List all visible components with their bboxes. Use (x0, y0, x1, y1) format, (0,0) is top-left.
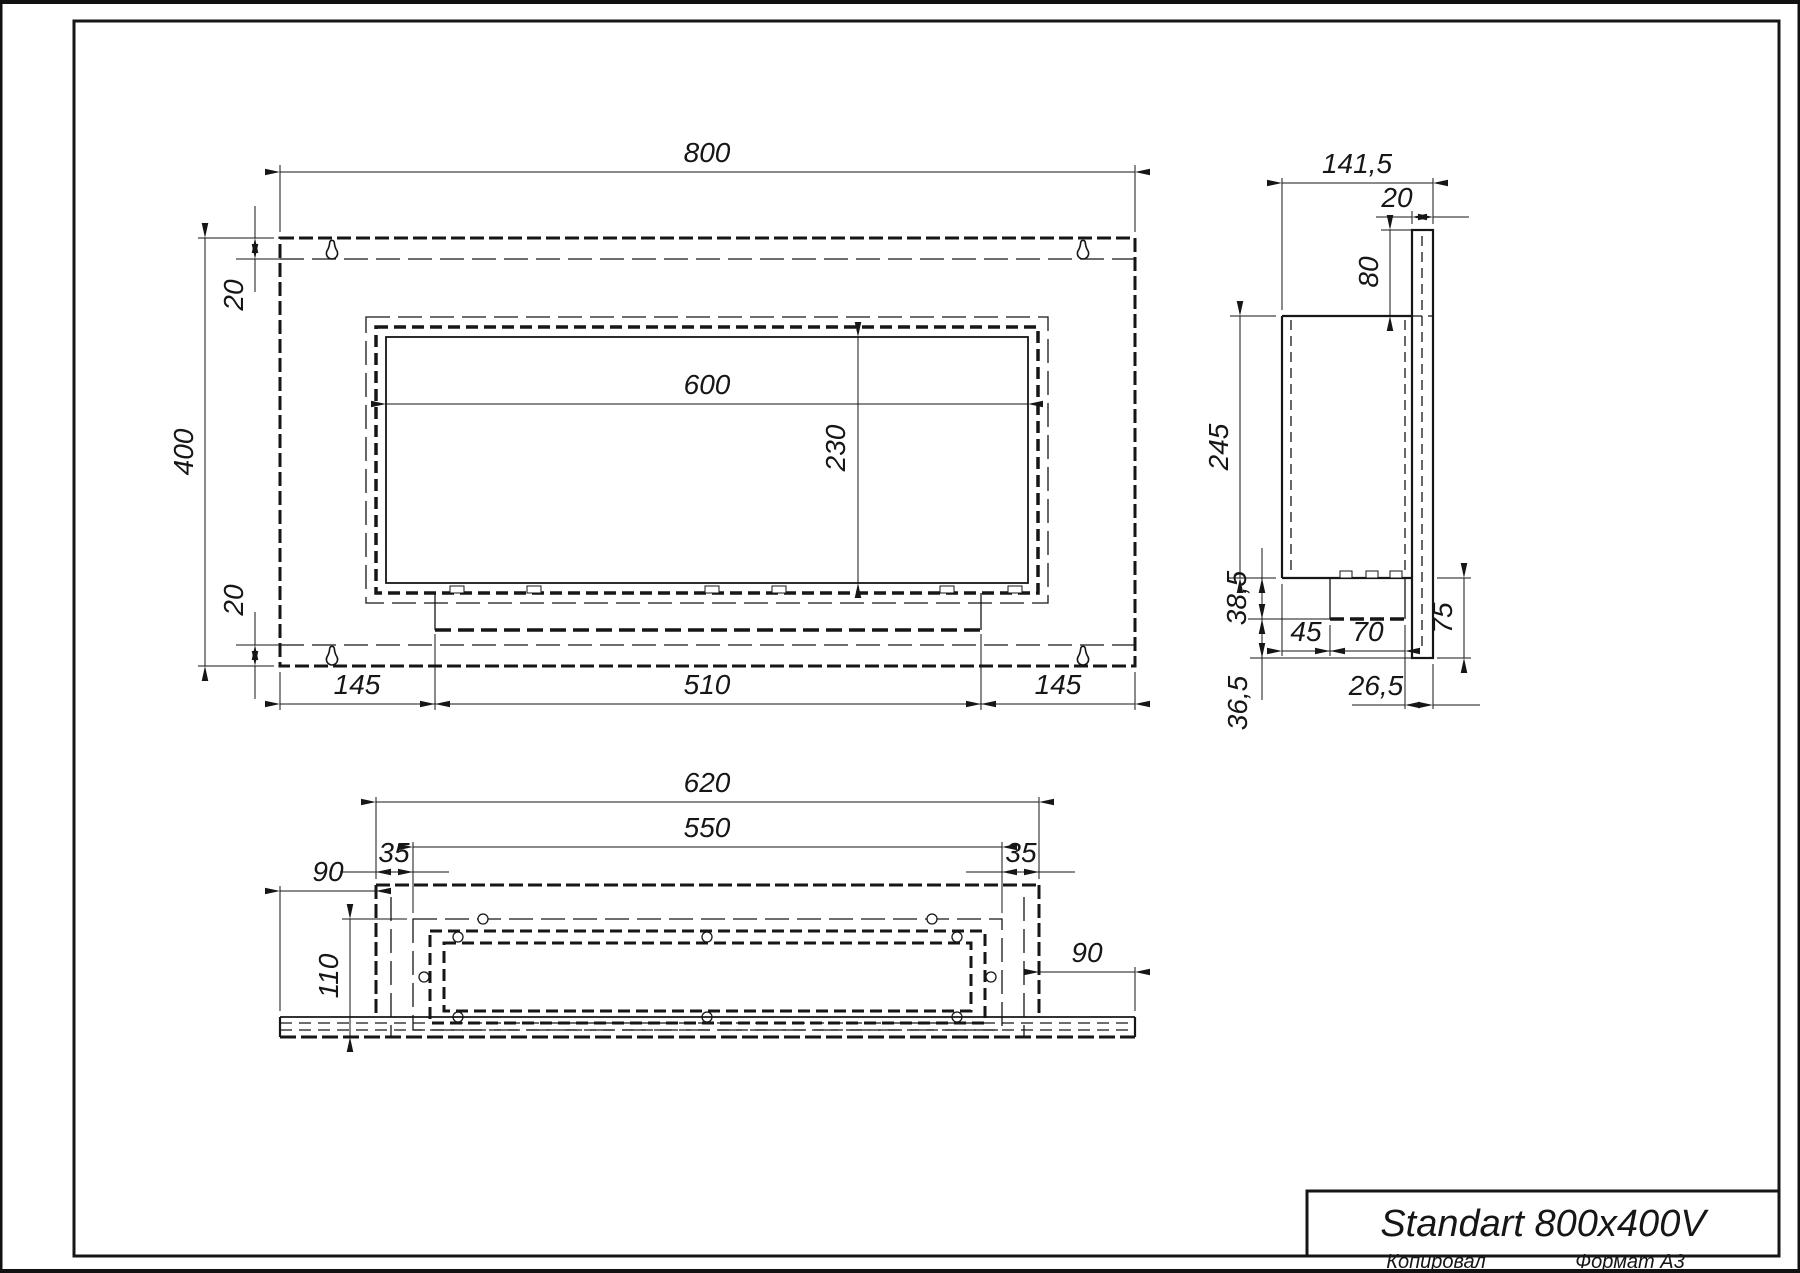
dim-front-height: 400 (168, 428, 199, 475)
page-edge-left (0, 0, 3, 1273)
dim-front-width: 800 (684, 137, 731, 168)
dim-front-offset-top: 20 (218, 279, 249, 312)
sheet-frame (0, 0, 1800, 1273)
front-view: 800 400 20 20 600 230 (168, 137, 1135, 710)
side-burner (1330, 578, 1405, 619)
side-view: 141,5 20 80 245 38,5 36 (1203, 148, 1480, 730)
dim-front-offset-bottom: 20 (218, 584, 249, 617)
keyhole-slot-bottom-right (1077, 646, 1088, 665)
page-edge-bottom (0, 1269, 1800, 1273)
keyhole-slot-top-right (1077, 240, 1088, 259)
keyhole-slot-bottom-left (326, 646, 337, 665)
dim-margin-left: 145 (334, 669, 381, 700)
side-view-dimensions: 141,5 20 80 245 38,5 36 (1203, 148, 1480, 730)
format-label: Формат А3 (1575, 1251, 1684, 1273)
dim-side-bottom-gap: 36,5 (1222, 675, 1253, 730)
dim-side-burner-width: 70 (1352, 616, 1384, 647)
dim-drawer-width: 510 (684, 669, 731, 700)
title-block: Standart 800x400V Копировал Формат А3 (1307, 1191, 1779, 1273)
dim-bottom-margin-right: 35 (1005, 837, 1037, 868)
dim-opening-width: 600 (684, 369, 731, 400)
front-view-dimensions: 800 400 20 20 600 230 (168, 137, 1135, 710)
dim-bottom-outer-width: 620 (684, 767, 731, 798)
front-frame-hidden (376, 327, 1038, 593)
technical-drawing: 800 400 20 20 600 230 (0, 0, 1800, 1273)
drawing-border (74, 21, 1779, 1256)
dim-side-top-gap: 80 (1353, 256, 1384, 288)
copied-label: Копировал (1386, 1251, 1485, 1273)
dim-side-burner-inset: 45 (1290, 616, 1322, 647)
dim-bottom-margin-left: 35 (378, 837, 410, 868)
front-frame-outer-hidden (366, 317, 1048, 603)
front-drawer-hidden (435, 593, 981, 630)
bottom-frame-inner-hidden (444, 943, 971, 1011)
side-tabs (1340, 571, 1402, 578)
dim-side-depth: 141,5 (1322, 148, 1392, 179)
dim-side-back-inset: 26,5 (1348, 670, 1404, 701)
bottom-frame-outer-hidden (430, 931, 985, 1023)
bottom-view: 620 550 35 35 90 90 (280, 767, 1135, 1037)
front-outer-panel (280, 238, 1135, 666)
dim-opening-height: 230 (820, 424, 851, 472)
dim-margin-right: 145 (1035, 669, 1082, 700)
drawing-sheet: 800 400 20 20 600 230 (0, 0, 1800, 1273)
dim-bottom-overhang-right: 90 (1071, 937, 1103, 968)
dim-bottom-depth: 110 (313, 953, 344, 998)
dim-side-ledge: 38,5 (1221, 570, 1252, 625)
page-edge-top (0, 0, 1800, 4)
dim-bottom-overhang-left: 90 (312, 856, 344, 887)
keyhole-slot-top-left (326, 240, 337, 259)
bottom-view-dimensions: 620 550 35 35 90 90 (280, 767, 1135, 1037)
dim-bottom-inner-width: 550 (684, 812, 731, 843)
dim-side-body-height: 245 (1203, 423, 1234, 471)
drawing-title: Standart 800x400V (1380, 1203, 1709, 1245)
dim-side-panel: 20 (1380, 182, 1413, 213)
dim-side-lower-height: 75 (1427, 602, 1458, 634)
